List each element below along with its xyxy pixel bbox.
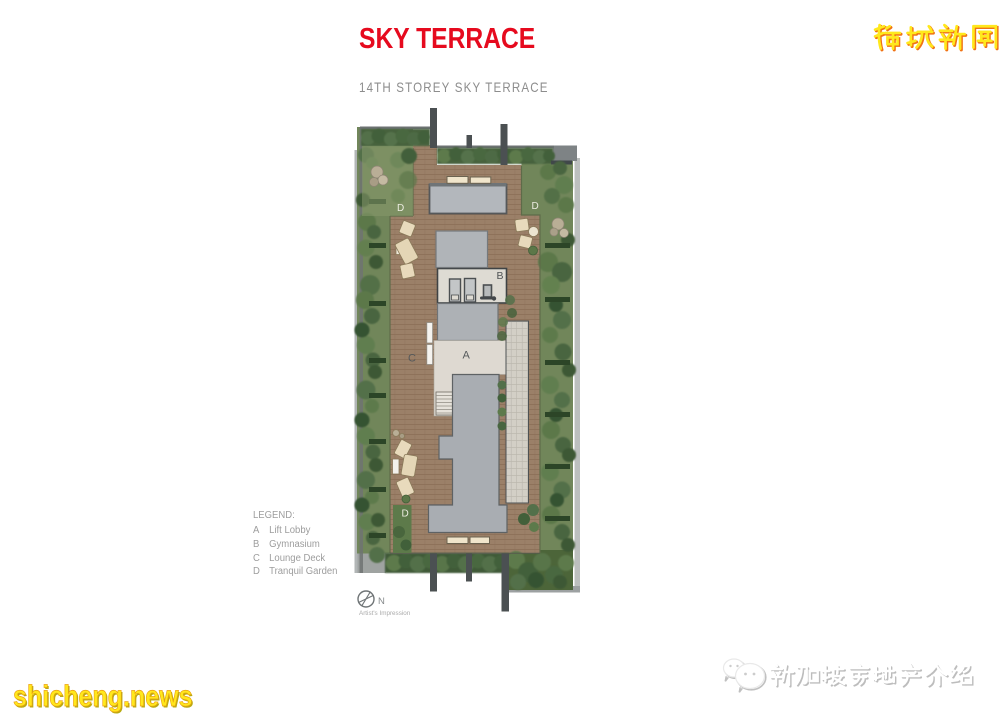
svg-text:D: D [402,509,409,520]
svg-text:C: C [408,353,416,365]
svg-text:B: B [497,270,504,282]
svg-text:A: A [463,350,471,362]
svg-text:N: N [378,596,385,607]
svg-text:D: D [397,203,404,214]
svg-text:D: D [532,201,539,212]
